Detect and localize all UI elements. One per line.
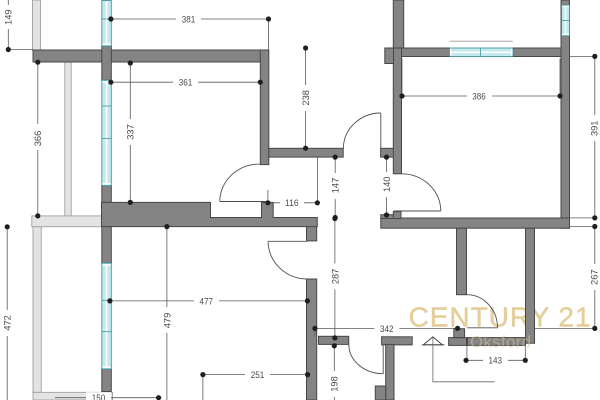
svg-text:361: 361 [179,78,193,88]
svg-text:391: 391 [589,121,600,137]
svg-text:267: 267 [589,269,600,285]
svg-text:337: 337 [126,124,137,140]
svg-text:366: 366 [33,131,44,147]
svg-text:342: 342 [380,324,394,334]
svg-text:143: 143 [489,356,503,366]
svg-text:287: 287 [330,269,341,285]
svg-text:381: 381 [182,14,196,24]
svg-text:477: 477 [200,296,214,306]
svg-text:150: 150 [92,393,106,400]
svg-text:198: 198 [330,376,341,392]
svg-text:147: 147 [331,178,342,194]
svg-text:116: 116 [285,198,299,208]
svg-text:Oksford: Oksford [470,333,531,351]
svg-text:386: 386 [472,91,486,101]
svg-text:472: 472 [3,315,14,331]
svg-text:238: 238 [301,90,312,106]
svg-text:140: 140 [382,177,393,193]
svg-text:CENTURY 21: CENTURY 21 [409,302,592,333]
svg-text:479: 479 [162,313,173,329]
svg-text:149: 149 [4,9,15,25]
svg-text:251: 251 [251,370,265,380]
